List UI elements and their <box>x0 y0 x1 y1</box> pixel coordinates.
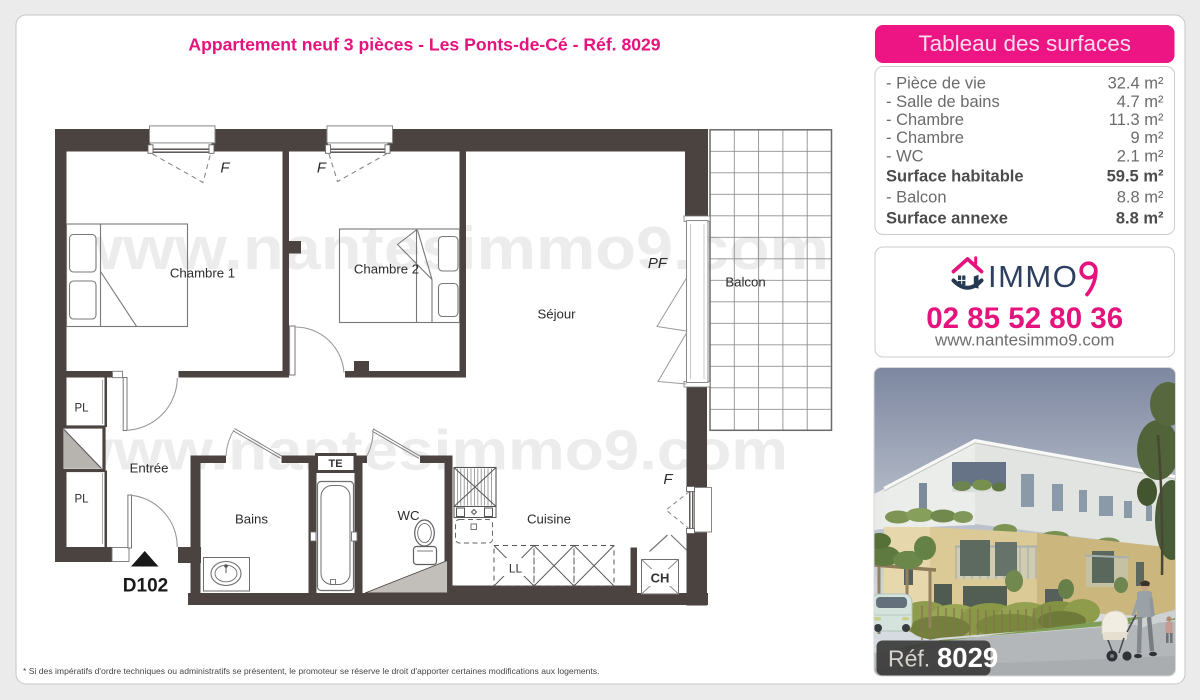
svg-text:32.4 m²: 32.4 m² <box>1108 75 1164 93</box>
svg-text:www.nantesimmo9.com: www.nantesimmo9.com <box>934 331 1115 350</box>
svg-text:- Pièce de vie: - Pièce de vie <box>886 75 986 93</box>
svg-text:Surface annexe: Surface annexe <box>886 210 1008 228</box>
svg-text:PL: PL <box>74 494 89 506</box>
svg-text:- WC: - WC <box>886 147 924 165</box>
svg-text:IMMO: IMMO <box>988 259 1078 294</box>
svg-text:Chambre 1: Chambre 1 <box>170 266 235 281</box>
svg-text:- Salle de bains: - Salle de bains <box>886 93 1000 111</box>
svg-text:9 m²: 9 m² <box>1131 129 1165 147</box>
svg-text:PF: PF <box>648 255 668 272</box>
svg-text:8.8 m²: 8.8 m² <box>1116 210 1164 228</box>
svg-text:Cuisine: Cuisine <box>527 512 571 527</box>
svg-text:Entrée: Entrée <box>130 461 169 476</box>
svg-text:Chambre 2: Chambre 2 <box>354 262 419 277</box>
svg-text:Tableau des surfaces: Tableau des surfaces <box>918 31 1131 56</box>
svg-text:Balcon: Balcon <box>725 275 765 290</box>
svg-text:8029: 8029 <box>937 642 998 673</box>
svg-text:Surface habitable: Surface habitable <box>886 167 1024 185</box>
svg-text:TE: TE <box>328 458 342 470</box>
svg-text:LL: LL <box>509 562 523 576</box>
svg-text:- Chambre: - Chambre <box>886 129 964 147</box>
svg-text:* Si des impératifs d'ordre te: * Si des impératifs d'ordre techniques o… <box>23 666 600 676</box>
svg-text:Réf.: Réf. <box>888 646 930 672</box>
svg-text:8.8 m²: 8.8 m² <box>1117 189 1164 207</box>
svg-text:PL: PL <box>74 403 89 415</box>
svg-text:Séjour: Séjour <box>537 307 576 322</box>
svg-text:F: F <box>663 471 673 488</box>
svg-text:CH: CH <box>651 571 670 586</box>
svg-text:- Chambre: - Chambre <box>886 111 964 129</box>
svg-text:WC: WC <box>398 508 420 523</box>
svg-text:D102: D102 <box>123 576 168 597</box>
svg-text:www.nantesimmo9.com: www.nantesimmo9.com <box>63 419 788 483</box>
svg-text:2.1 m²: 2.1 m² <box>1117 147 1164 165</box>
svg-text:- Balcon: - Balcon <box>886 189 947 207</box>
svg-text:4.7 m²: 4.7 m² <box>1117 93 1164 111</box>
svg-text:F: F <box>317 160 327 177</box>
svg-text:Appartement neuf 3 pièces - Le: Appartement neuf 3 pièces - Les Ponts-de… <box>188 35 660 55</box>
svg-text:F: F <box>220 160 230 177</box>
svg-text:Bains: Bains <box>235 512 268 527</box>
svg-text:11.3 m²: 11.3 m² <box>1109 111 1164 129</box>
svg-text:59.5 m²: 59.5 m² <box>1107 167 1164 185</box>
